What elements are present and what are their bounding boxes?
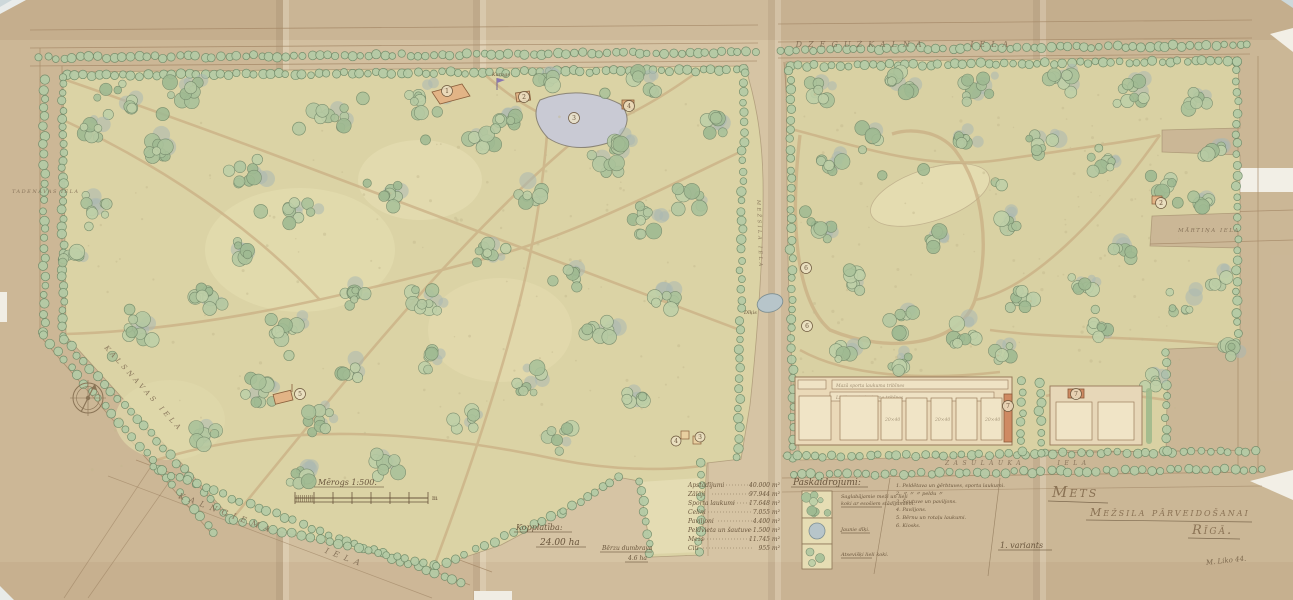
- sports-complex: Mazā sporta laukuma tribīnes Lielā sport…: [795, 377, 1152, 445]
- street-label-bottom-center: ZASULAUKA IELA: [944, 460, 1091, 467]
- legend-header: Paskaidrojumi:: [792, 478, 861, 488]
- park-plan-map: Mazā sporta laukuma tribīnes Lielā sport…: [0, 0, 1293, 600]
- legend-item: 3. Šautuve un paviljons.: [896, 497, 957, 505]
- area-row-label: Sporta laukumi: [688, 500, 735, 507]
- area-row-label: Paviljoni: [687, 518, 714, 525]
- marker-number: 7: [1006, 403, 1010, 410]
- marker-number: 5: [298, 391, 302, 398]
- street-label-left: TADENAVAS IELA: [12, 189, 80, 195]
- area-row-label: Zālāji: [687, 491, 705, 498]
- flag-label: Karogs: [491, 72, 510, 78]
- area-row-value: 11.745 m²: [749, 536, 781, 543]
- plan-title-line3: Rīgā.: [1191, 523, 1233, 538]
- legend-item: 2. 〃 〃 〃 peldu 〃: [895, 491, 943, 497]
- legend-swatch-label: Atsevišķi lieli koki.: [840, 551, 889, 558]
- area-row-value: 4.400 m²: [752, 518, 781, 525]
- scanned-park-plan: Mazā sporta laukuma tribīnes Lielā sport…: [0, 0, 1293, 600]
- sub-area-label: Bērzu dumbrava: [601, 545, 653, 552]
- pond-label: Dīķis: [743, 310, 757, 316]
- area-row-value: 955 m²: [759, 545, 781, 552]
- tennis-courts: 20×40 20×40 20×40: [881, 398, 1002, 440]
- area-row-value: 1.500 m²: [753, 527, 781, 534]
- marker-number: 3: [572, 115, 576, 122]
- marker-number: 7: [1074, 391, 1078, 398]
- plan-title-line1: Mets: [1051, 483, 1098, 501]
- area-row-value: 17.648 m²: [749, 500, 781, 507]
- marker-number: 2: [1159, 200, 1163, 207]
- street-label-top: DZEGUŽKALNA IELA: [795, 40, 1015, 49]
- area-row-value: 7.055 m²: [753, 509, 781, 516]
- sports-band1-label: Mazā sporta laukuma tribīnes: [835, 383, 905, 389]
- area-row-value: 97.944 m²: [749, 491, 781, 498]
- street-label-right: MĀRTIŅA IELA: [1177, 227, 1240, 234]
- area-row-label: Celiņi: [688, 509, 706, 516]
- area-row-value: 40.000 m²: [748, 482, 781, 489]
- legend-item: 4. Paviljons.: [895, 507, 927, 513]
- marker-number: 1: [445, 88, 449, 95]
- court-dimension: 20×40: [934, 417, 950, 423]
- marker-number: 3: [698, 434, 702, 441]
- legend-item: 5. Bērnu un rotaļu laukumi.: [896, 515, 967, 521]
- total-area-value: 24.00 ha: [539, 538, 580, 548]
- area-row-label: Peldvieta un šautuve: [687, 527, 752, 534]
- legend-swatch-label: Jaunie dīķi.: [840, 527, 870, 533]
- marker-number: 4: [627, 103, 631, 110]
- area-row-label: Citi: [688, 545, 699, 552]
- marker-number: 6: [805, 323, 809, 330]
- court-dimension: 20×40: [984, 417, 1000, 423]
- marker-number: 4: [674, 438, 678, 445]
- marker-number: 6: [804, 265, 808, 272]
- variant-label: 1. variants: [1000, 541, 1043, 550]
- area-row-label: Apstādījumi: [687, 482, 724, 489]
- marker-number: 2: [522, 94, 526, 101]
- plan-title-line2: Mežsila pārveidošanai: [1089, 506, 1250, 519]
- sub-area-value: 4.6 ha: [627, 555, 647, 562]
- area-row-label: Mežs: [687, 536, 704, 543]
- total-area-label: Kopplatība:: [515, 523, 563, 532]
- legend-item: 6. Kiosks.: [896, 523, 921, 529]
- scale-label: Mērogs 1:500.: [317, 478, 377, 487]
- legend-item: 1. Peldētava un ģērbtuves, sporta laukum…: [896, 482, 1005, 489]
- court-dimension: 20×40: [884, 417, 900, 423]
- scale-unit: m: [432, 495, 438, 502]
